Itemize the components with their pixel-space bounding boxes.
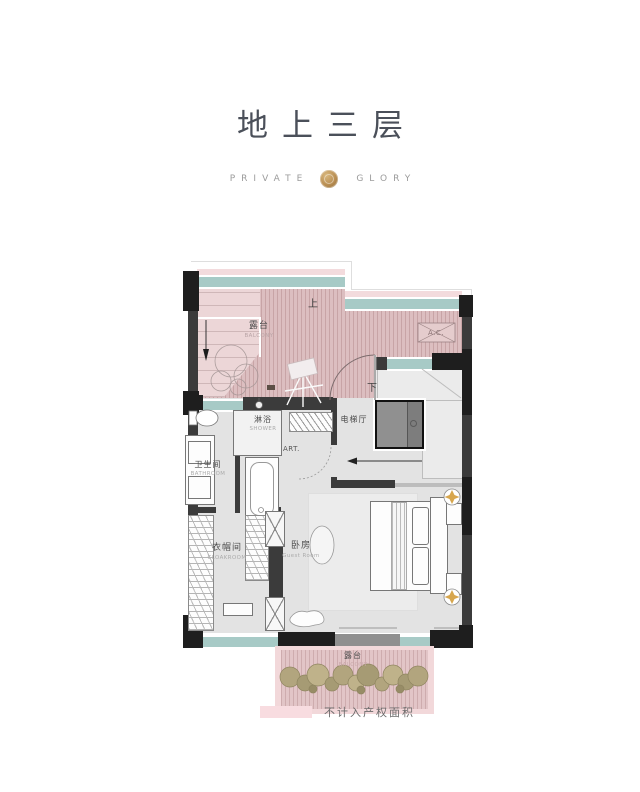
label-up: 上 <box>308 295 319 310</box>
label-ac: A.C. <box>428 329 444 337</box>
brand-seal-icon <box>320 170 338 188</box>
pillow <box>412 507 429 545</box>
stair-treads-right <box>422 400 464 479</box>
label-down: 下 <box>367 379 378 394</box>
label-elevator-hall: 电梯厅 <box>335 415 373 425</box>
bed-runner <box>391 502 407 590</box>
wall-block <box>432 353 462 370</box>
legend-swatch <box>260 706 312 718</box>
wall-south-block <box>430 630 472 648</box>
nightstand <box>446 503 462 525</box>
wall-south-gray <box>335 634 400 646</box>
wardrobe-west <box>188 515 214 631</box>
stair-treads-upper <box>377 367 464 402</box>
floor-plan: 上 露台 BALCONY A.C. 下 淋浴 SHOWER 电梯厅 ART. 卫… <box>175 245 472 715</box>
wall-cloakroom-north <box>188 507 216 513</box>
brand-logo: PRIVATE GLORY <box>0 170 640 188</box>
label-terrace-bottom: 露台 BALCONY <box>323 651 383 669</box>
label-shower: 淋浴 SHOWER <box>239 415 287 433</box>
wall-south-block <box>183 630 203 648</box>
window-bottom-left <box>203 635 278 649</box>
sink <box>188 476 211 499</box>
roof-outline <box>351 289 472 290</box>
wall-block-east <box>462 349 472 415</box>
pillow <box>412 547 429 585</box>
legend-label: 不计入产权面积 <box>324 704 415 720</box>
wall-terrace-south-west <box>243 397 333 410</box>
wall-terrace-south-east <box>375 357 387 370</box>
elevator-detail <box>410 420 417 427</box>
legend: 不计入产权面积 <box>260 704 415 720</box>
wall-corner-ne <box>459 295 473 317</box>
label-cloakroom: 衣帽间 CLOAKROOM <box>201 543 253 562</box>
cabinet-hatched <box>289 412 333 432</box>
roof-outline <box>191 261 352 262</box>
dresser <box>223 603 253 616</box>
low-wall-bedroom <box>395 483 462 487</box>
bathtub-basin <box>250 462 274 516</box>
window-top-right <box>345 297 462 311</box>
wall-corner-nw <box>183 271 199 311</box>
label-art: ART. <box>283 445 300 453</box>
cabinet-x <box>265 597 285 631</box>
stair-landing-line <box>198 317 260 319</box>
floor-plan-page: 地上三层 PRIVATE GLORY <box>0 0 640 792</box>
label-bedroom: 卧房 Guest Room <box>271 541 331 560</box>
nightstand <box>446 573 462 595</box>
label-terrace-top: 露台 BALCONY <box>233 321 285 340</box>
page-title: 地上三层 <box>0 100 640 145</box>
brand-word-right: GLORY <box>350 174 416 184</box>
elevator <box>375 400 424 449</box>
wall-hall-south <box>331 480 395 488</box>
roof-outline <box>351 261 352 290</box>
wall-block <box>188 395 203 410</box>
wall-block-east <box>462 477 472 535</box>
label-bathroom: 卫生间 BATHROOM <box>183 460 233 478</box>
brand-word-left: PRIVATE <box>224 174 309 184</box>
window-terrace-inner <box>387 357 432 371</box>
terrace-top-right-deck <box>345 307 462 357</box>
window-top-left <box>197 275 345 289</box>
